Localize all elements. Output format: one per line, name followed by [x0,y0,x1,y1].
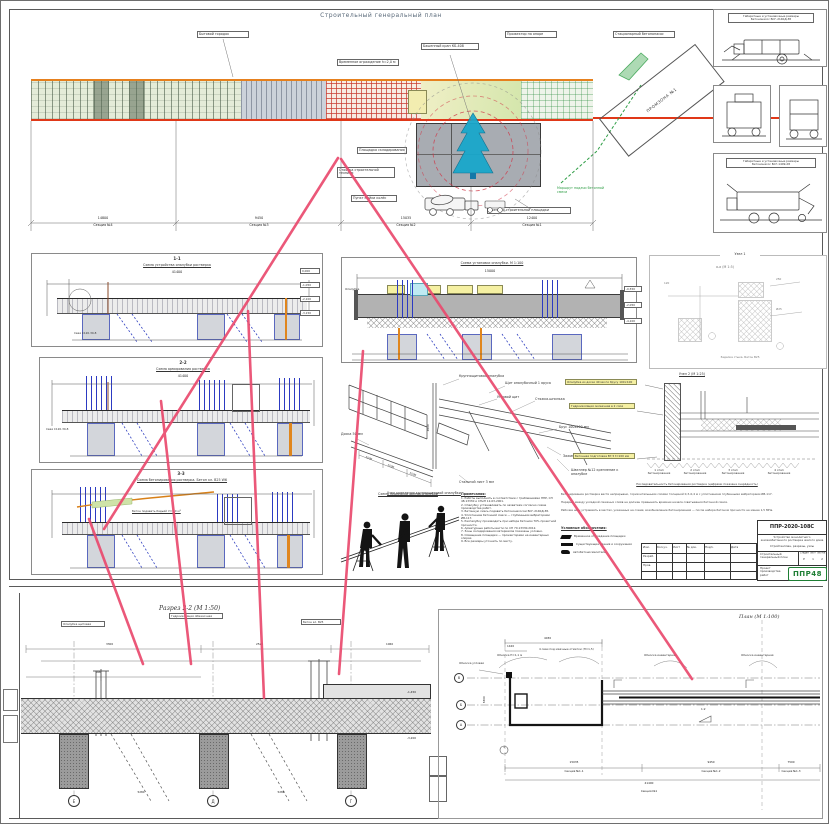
strip-dim-label: Секция №4 [63,224,143,228]
notes-block: Примечания: 1. Работы выполнять в соотве… [461,493,557,577]
center-orange-mark [398,328,400,360]
site-plan: Бытовой городок Временное ограждение h=2… [1,1,829,241]
section-1-elev: -2,100 [300,296,320,302]
detail-2-stage: 1 этап бетонирования [643,469,675,476]
section-3-beam [62,522,310,535]
detail-2-paragraph-line: Рабочие швы устраивать в местах, указанн… [561,509,823,512]
section-1-orange-mark [285,298,287,340]
org-cell: Проект производства работ [760,567,786,577]
bl-top-dim: 2520 [256,643,263,646]
axis-bubble: В [454,673,464,683]
bl-elevation: -1,450 [407,691,416,694]
detail-2-paragraph-line: Бетонирование ростверка вести непрерывно… [561,493,823,496]
detail-2-channel [736,425,796,430]
legend-item-label: Временное ограждение площадки [574,535,625,538]
br-dim-value: 7500 [761,761,821,764]
legend-item: Временное ограждение площадки [561,535,641,539]
bl-bottom-dim: 5280 [251,791,311,794]
br-callout: Обноска угловая [459,662,493,665]
callout-site-exit: Выезд со строительной площадки [487,207,571,214]
br-top-dim: 4030 [544,637,551,640]
doc-description-1: Устройство монолитного железобетонного р… [760,536,824,543]
section-3-rebar-group [272,492,296,522]
bl-callout: Гидроизоляция обмазочная [169,613,223,619]
section-2-pier [197,423,225,456]
detail-2-label: Опалубка из доски 40 мм по брусу 100×100 [565,379,637,385]
bl-pier [337,734,367,789]
doc-row: Разраб. [643,555,654,558]
doc-col: Кол.уч. [657,546,668,549]
section-2-mark: 2-2 [168,361,198,366]
workers-figure: Схема переноски щитов опалубки [329,491,469,575]
strip-zone-red-hatch [326,81,421,119]
leader-camp [223,39,233,77]
green-direction-arrow [619,53,648,80]
site-strip [31,79,593,121]
section-1-dim: 41400 [157,271,197,275]
section-3-pier [197,535,225,568]
section-1-pile-label: Свая С120.30-8 [74,332,114,335]
strip-dim-value: 15035 [366,217,446,221]
workers-drawing [329,499,469,575]
callout-pump: Стационарный бетононасос [613,31,675,38]
bottom-right-drawing: План (М 1:100) [438,609,823,819]
strip-zone-dark-cluster-1 [93,81,109,119]
section-3-title: Схема бетонирования ростверка. Бетон кл.… [107,479,257,483]
br-callout: Обноска инвентарная [741,654,785,657]
doc-col: Подп. [705,546,713,549]
callout-wheel-wash: Пункт мойки колёс [351,195,397,202]
br-overall-value: 41400 [619,782,679,785]
doc-description-2: Стройгенплан, разрезы, узлы [760,545,824,548]
center-endwall-left [354,290,358,320]
iso-callout: Угловой щит [497,396,537,400]
strip-zone-yellow-green [421,81,521,119]
center-section-title: Схема установки опалубки. М 1:100 [427,262,557,266]
br-dim-label: Секция №1.3 [761,770,821,773]
promzone-label: ПРОМЗОНА №1 [646,87,678,114]
detail-2-paragraph-line: Перерыв между укладкой смежных слоёв не … [561,501,823,504]
section-1-elev: -3,150 [300,310,320,316]
center-pier [387,334,417,360]
iso-callout: Крупнощитовая опалубка [459,375,511,379]
detail-1-caption: Заделка стыка. Бетон В25 [700,356,780,359]
equipment-panel-2 [713,85,771,143]
callout-fence: Временное ограждение h=2,0 м [337,59,399,66]
axis-bubble: Д [207,795,219,807]
equipment-panel-1: Габаритные и установочные размерыБетонон… [713,9,827,67]
section-3-pier [277,535,303,568]
mixer-truck-icon [425,194,478,215]
br-mark: 1 [500,746,508,749]
bl-mid-dim: 900 [96,671,101,674]
center-elev: -0,550 [624,286,642,292]
legend-title: Условные обозначения: [561,527,641,531]
doc-col: Лист [673,546,680,549]
center-pier [552,334,582,360]
center-rebar-group [397,280,417,318]
detail-2-stage: 4 этап бетонирования [763,469,795,476]
detail-1-title: Узел 1 [720,253,760,257]
legend-item-label: Автобетоносмеситель [573,551,606,554]
stage-header: Стадия [800,552,809,555]
section-1-mark: 1-1 [162,257,192,262]
iso-callout: Щит опалубочный 1 яруса [505,382,555,386]
promzone-parcel: ПРОМЗОНА №1 [599,44,725,157]
workers-title: Схема переноски щитов опалубки [353,493,463,497]
center-yellow-block [447,285,473,294]
legend-item: Существующие здания и сооружения [561,543,641,547]
detail-1-dim: 250 [776,278,781,281]
center-section-panel: Схема установки опалубки. М 1:100 15000 [341,257,637,363]
center-label: Опалубка [345,288,361,291]
center-orange-mark [480,328,482,360]
bl-top-dim: 1060 [386,643,393,646]
section-1-beam [57,298,307,314]
legend: Условные обозначения: Временное огражден… [561,527,641,579]
detail-2-caption: Последовательность бетонирования роствер… [597,483,797,486]
section-2-box-detail [232,384,260,412]
detail-2-title: Узел 2 (М 1:25) [657,373,727,377]
detail-2-lines [557,371,825,519]
bottom-left-title: Разрез 2-2 (М 1:50) [159,605,220,612]
br-title: План (М 1:100) [739,614,779,620]
bl-callout: Бетон кл. В25 [301,619,341,625]
section-cell: Строительный генеральный план [760,553,796,560]
center-section-dim: 15000 [470,270,510,274]
logo-text: ППР48 [793,570,822,578]
equipment-panel-4-title: Габаритные и установочные размерыБетонон… [726,158,816,168]
pump-side-view [714,30,828,68]
strip-dim-value: 12400 [492,217,572,221]
axis-bubble: Б [456,700,466,710]
section-3-pier [87,535,115,568]
note-line: 9. Все размеры уточнить по месту. [461,540,557,543]
bl-margin-detail [3,689,18,711]
equipment-panel-1-title: Габаритные и установочные размерыБетонон… [728,13,814,23]
center-elev: -4,100 [624,318,642,324]
detail-1-dim: Ø25 [776,308,782,311]
pump-side-view-2 [714,176,828,232]
section-2-left-note: Свая С120.30-8 [46,428,82,431]
legend-item: Автобетоносмеситель [561,550,641,554]
section-2-orange-mark [289,423,292,456]
bl-slab-band [21,698,431,734]
br-dim-value: 9450 [671,761,751,764]
building-inner-line [451,124,452,186]
callout-crane: Башенный кран КБ-408 [421,43,479,50]
br-callout: Обноска Н=1,1 м [497,654,531,657]
doc-col: Изм. [643,546,650,549]
drawing-sheet: Строительный генеральный план Бытовой го… [0,0,829,824]
br-dim-label: Секция №1.1 [534,770,614,773]
bl-pier [59,734,89,789]
doc-col: Дата [731,546,738,549]
detail-2-stage: 2 этап бетонирования [679,469,711,476]
br-plan-lines [439,610,824,820]
strip-dim-label: Секция №1 [492,224,572,228]
axis-bubble: Г [345,795,357,807]
bl-callout: Опалубка щитовая [61,621,105,627]
section-1-pier [82,314,110,340]
section-2-beam [62,410,310,423]
building-icon [561,543,573,547]
legend-item-label: Существующие здания и сооружения [576,543,632,546]
center-pier [462,334,492,360]
sheets-value: 2 [818,558,826,561]
iso-callout: Стальной лист 3 мм [459,481,503,485]
center-yellow-block [477,285,503,294]
detail-2-label: Бетонная подготовка В7,5 t=100 мм [573,453,635,459]
sheets-header: Листов [817,552,825,555]
strip-zone-green-grid [521,81,593,119]
strip-dim-label: Секция №2 [366,224,446,228]
site-plan-overlay [1,1,829,241]
detail-1-block [738,282,764,298]
section-2-title: Схема армирования ростверка [128,368,238,372]
bl-bottom-dim: 5280 [111,791,171,794]
br-callout: 4 сваи под маячные отметки (Н≈1,5) [539,648,597,651]
detail-2-label: Гидроизоляция оклеечная в 2 слоя [569,403,635,409]
br-overall-label: Секция №1 [619,790,679,793]
bl-pier [199,734,229,789]
stage-value: Р [800,558,808,561]
br-v-dim: 6300 [483,696,486,703]
doc-row: Пров. [643,564,651,567]
bl-margin-detail [3,715,18,743]
section-2-rebar-group [86,376,112,410]
callout-concrete-route: Маршрут подачи бетонной смеси [557,187,613,195]
bl-top-dim: 3300 [106,643,113,646]
strip-dim-value: 9450 [219,217,299,221]
truck-icon [561,550,570,554]
worker-silhouettes [359,506,445,568]
strip-zone-gray [241,81,326,119]
building-footprint [416,123,541,187]
section-1-elev: -1,050 [300,282,320,288]
section-panel-3: 3-3 Схема бетонирования ростверка. Бетон… [31,469,323,575]
strip-zone-dark-cluster-2 [129,81,145,119]
detail-2-wall [664,383,681,461]
equipment-panel-4: Габаритные и установочные размерыБетонон… [713,153,827,233]
detail-1-dim: 120 [664,282,669,285]
iso-dim: 4500 [427,424,430,431]
section-2-dim: 41400 [163,375,203,379]
building-inner-line-2 [417,154,540,155]
strip-dim-value: 14800 [63,217,143,221]
section-2-rebar-group [199,380,225,410]
equipment-panel-3 [779,85,827,147]
logo-box: ППР48 [788,567,827,581]
callout-floodlight: Прожектор на опоре [505,31,557,38]
pump-front-view-1 [714,86,772,144]
strip-kiosk [408,90,427,114]
br-dim-label: Секция №1.2 [671,770,751,773]
sheet-separator-2 [9,586,823,587]
section-1-pier [274,314,300,340]
axis-bubble: А [456,720,466,730]
callout-parking: Стоянка строительной техники [337,167,395,178]
section-3-mark: 3-3 [166,472,196,477]
pump-front-view-2 [780,86,828,148]
section-panel-2: 2-2 Схема армирования ростверка 41400 Св… [39,357,323,463]
section-2-pier [87,423,115,456]
section-panel-1: 1-1 Схема устройства опалубки ростверка … [31,253,323,347]
detail-2: Узел 2 (М 1:25) Опалубка из доски 40 мм … [557,371,825,519]
bottom-left-drawing: Разрез 2-2 (М 1:50) Опалубка щитовая Гид… [1,591,441,821]
title-block: ППР-2020-108С Устройство монолитного жел… [757,520,827,581]
section-1-pier [197,314,225,340]
fence-icon [560,535,572,539]
detail-1-block [678,318,702,342]
br-slope: 1:2 [701,708,706,711]
detail-1-block [738,300,772,342]
center-rebar-group [542,280,562,318]
axis-bubble: Е [68,795,80,807]
doc-table: Изм. Кол.уч. Лист № док. Подп. Дата Разр… [641,543,757,580]
detail-1-subtitle: а-а (М 1:5) [695,266,755,270]
br-top-dim: 1420 [507,645,514,648]
section-2-rebar-group [279,378,301,410]
section-3-rebar-group [80,487,106,522]
section-3-note: Бетон подавать бадьёй V=1,0 м³ [132,510,212,513]
center-elev: -2,050 [624,302,642,308]
sheet-value: 1 [809,558,817,561]
center-underslab-hatch [367,318,607,328]
sheet-header: Лист [810,552,816,555]
br-dim-value: 15035 [534,761,614,764]
detail-1-panel: Узел 1 а-а (М 1:5) 120 250 Ø25 Заделка с… [649,255,827,369]
section-1-elev: 0,000 [300,268,320,274]
doc-col: № док. [687,546,697,549]
center-yellow-block [427,285,441,294]
iso-callout: Доска 50 мм [341,433,371,437]
br-callout: Обноска инвентарная [644,654,688,657]
callout-storage-area: Площадка складирования [357,147,407,154]
doc-number: ППР-2020-108С [758,524,826,530]
bl-elevation: -3,200 [407,737,416,740]
section-3-orange-mark [287,535,290,568]
callout-household-camp: Бытовой городок [197,31,249,38]
section-3-box-detail [224,497,252,525]
detail-2-stage: 3 этап бетонирования [717,469,749,476]
strip-dim-label: Секция №3 [219,224,299,228]
section-1-title: Схема устройства опалубки ростверка [117,264,237,268]
